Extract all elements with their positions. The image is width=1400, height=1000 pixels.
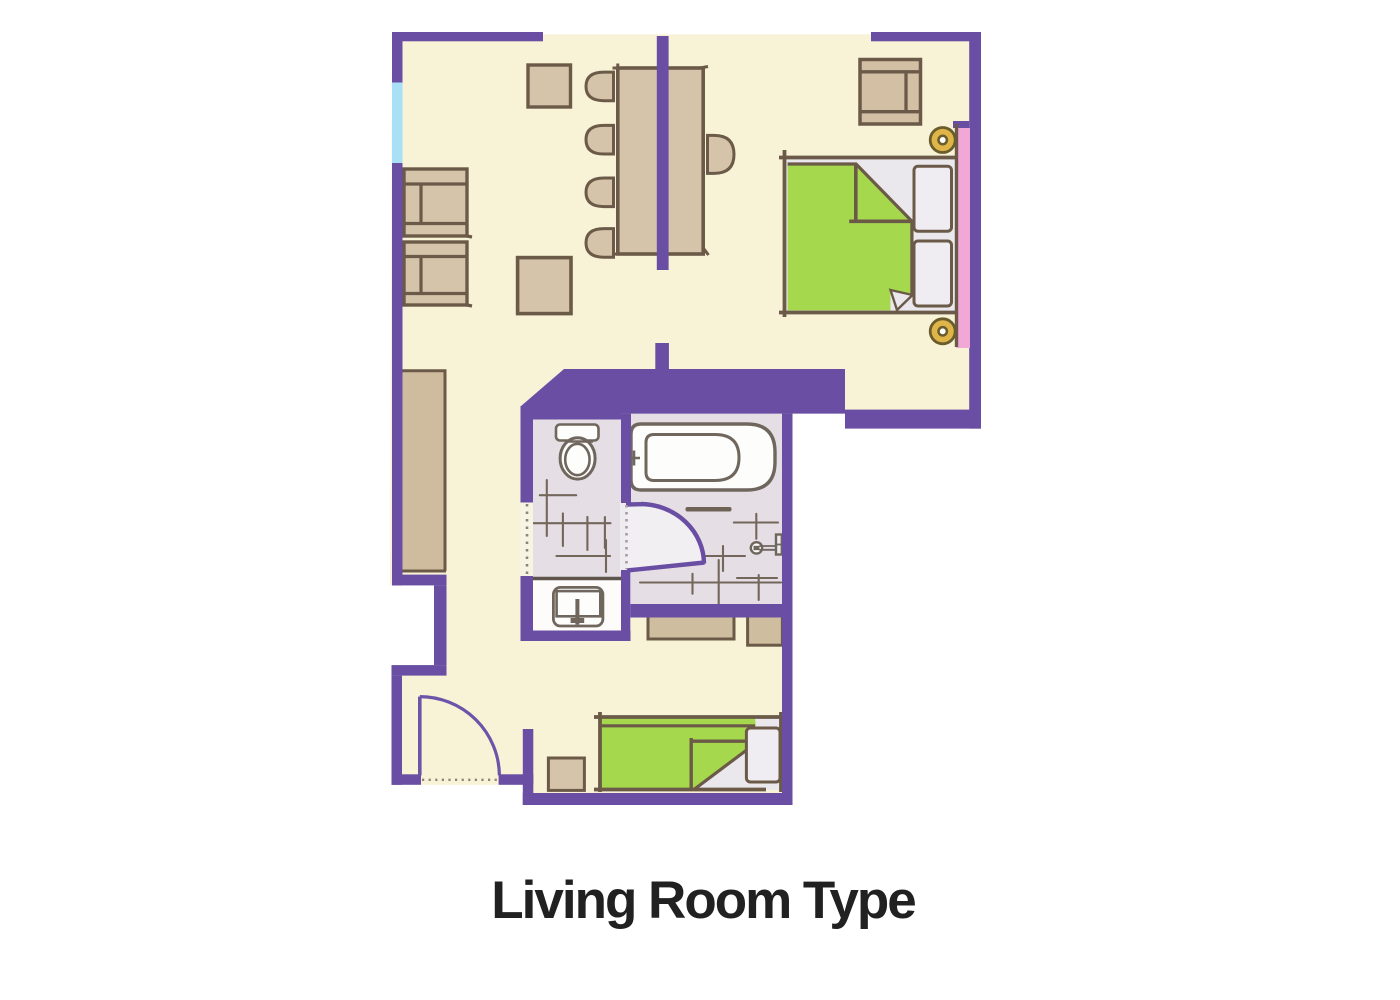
svg-text:Living Room Type: Living Room Type (491, 871, 915, 930)
